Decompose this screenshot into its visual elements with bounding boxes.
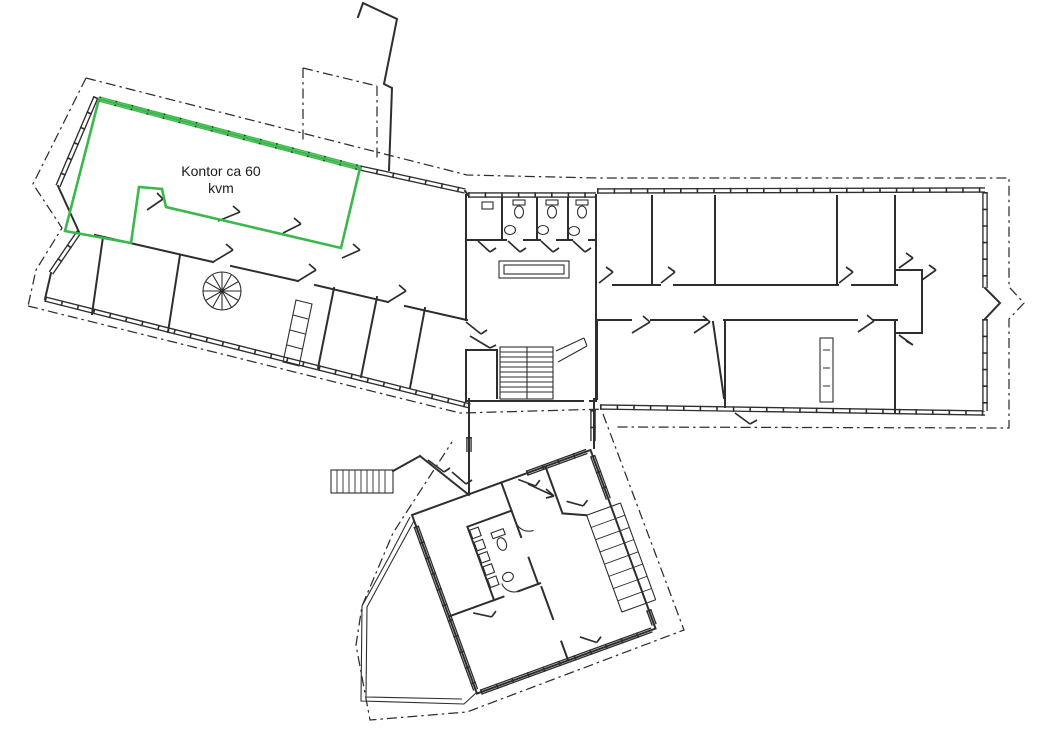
- south-interior-walls: [412, 447, 665, 694]
- left-wing-window-walls: [45, 97, 470, 406]
- door-arc: [516, 517, 534, 535]
- door-swing: [470, 336, 496, 348]
- door-swing: [580, 630, 603, 647]
- door-swing: [473, 605, 497, 622]
- sink-icon: [501, 571, 514, 583]
- counter-outer: [499, 261, 569, 278]
- door-swing: [466, 322, 487, 334]
- external-staircase: [331, 470, 393, 493]
- right-wing-partitions: [652, 196, 922, 412]
- door-swing: [298, 264, 316, 281]
- wc-room: [466, 198, 596, 252]
- stair-side-room: [468, 350, 497, 398]
- door-swing: [508, 241, 526, 252]
- stair-treads: [591, 515, 652, 601]
- corridor-wall: [95, 235, 467, 320]
- room-partition-wall: [652, 196, 895, 285]
- door-swing: [858, 315, 874, 332]
- overhang-annex-outline: [303, 68, 377, 160]
- door-swing: [541, 241, 559, 252]
- door-swing: [478, 241, 496, 252]
- radiator-cabinet: [283, 300, 312, 366]
- service-closet: [820, 338, 833, 402]
- door-swing: [573, 241, 591, 252]
- door-swing: [567, 494, 589, 510]
- central-core: [466, 195, 596, 452]
- door-swing: [661, 267, 675, 283]
- shelf-icon: [482, 202, 493, 209]
- stair-treads: [337, 470, 385, 493]
- door-swing: [735, 413, 757, 424]
- overhang-left-bottom-outline: [28, 306, 607, 413]
- office-label-line2: kvm: [208, 180, 234, 196]
- left-gable-notch-wall: [45, 186, 468, 299]
- bathroom-walls: [467, 511, 538, 600]
- office-label-line1: Kontor ca 60: [181, 163, 261, 179]
- sink-icon: [505, 226, 516, 235]
- stair-handrail: [556, 338, 587, 362]
- vestibule: [895, 270, 922, 333]
- floor-plan-page: Kontor ca 60 kvm: [0, 0, 1058, 734]
- toilet-tank-icon: [491, 529, 505, 539]
- floor-plan-canvas: Kontor ca 60 kvm: [0, 0, 1058, 734]
- terrace: [361, 517, 476, 704]
- vestibule-walls: [895, 270, 922, 333]
- toilet-icon: [548, 206, 557, 218]
- connector-walls: [469, 399, 594, 494]
- roof-overhang-outline: [28, 68, 1024, 720]
- toilet-tank-icon: [513, 200, 525, 205]
- overhang-left-gable-outline: [28, 78, 86, 306]
- left-wing-door-marks: [147, 193, 406, 302]
- south-staircase: [587, 503, 656, 612]
- toilet-tank-icon: [576, 200, 588, 205]
- sink-icon: [538, 226, 549, 235]
- terrace-edge: [361, 517, 476, 704]
- core-outer-walls: [466, 195, 596, 401]
- closet-shelf-marks: [823, 350, 830, 386]
- room-partition-wall: [713, 320, 895, 412]
- door-swing: [632, 316, 650, 333]
- stair-outline: [587, 503, 656, 612]
- door-swing: [213, 244, 233, 262]
- spiral-staircase: [203, 272, 241, 310]
- toilet-icon: [578, 206, 587, 218]
- door-swing: [839, 267, 853, 283]
- partition-wall: [412, 459, 631, 694]
- left-wing-interior-walls: [92, 235, 467, 388]
- toilet-tank-icon: [546, 200, 558, 205]
- door-swing: [147, 193, 163, 210]
- stair-outline: [331, 470, 393, 493]
- left-wing: Kontor ca 60 kvm: [45, 97, 470, 406]
- door-swing: [694, 316, 710, 333]
- door-swing: [283, 218, 301, 233]
- main-staircase: [468, 336, 587, 399]
- counter-inner: [504, 265, 564, 274]
- south-wing: [412, 447, 665, 694]
- entry-connector: [393, 399, 594, 498]
- hall-counter: [499, 261, 569, 278]
- door-swing: [899, 335, 913, 345]
- south-bathroom: [467, 511, 538, 600]
- toilet-icon: [515, 206, 524, 218]
- right-gable-notch-wall: [985, 288, 1000, 319]
- wc-door-marks: [478, 241, 591, 252]
- door-swing: [922, 265, 936, 280]
- right-wing-door-marks: [599, 253, 936, 424]
- corridor: [597, 285, 897, 399]
- office-label: Kontor ca 60 kvm: [181, 163, 261, 196]
- door-swing: [599, 267, 613, 283]
- closet-box: [820, 338, 833, 402]
- right-wing: [597, 190, 1000, 424]
- door-swing: [388, 285, 406, 302]
- door-swing: [899, 253, 913, 268]
- right-wing-window-walls: [597, 190, 985, 413]
- door-swing: [342, 244, 360, 258]
- sink-icon: [569, 227, 580, 236]
- entry-arrow: [528, 484, 554, 498]
- toilet-icon: [495, 536, 508, 551]
- wc-fixtures: [482, 200, 588, 236]
